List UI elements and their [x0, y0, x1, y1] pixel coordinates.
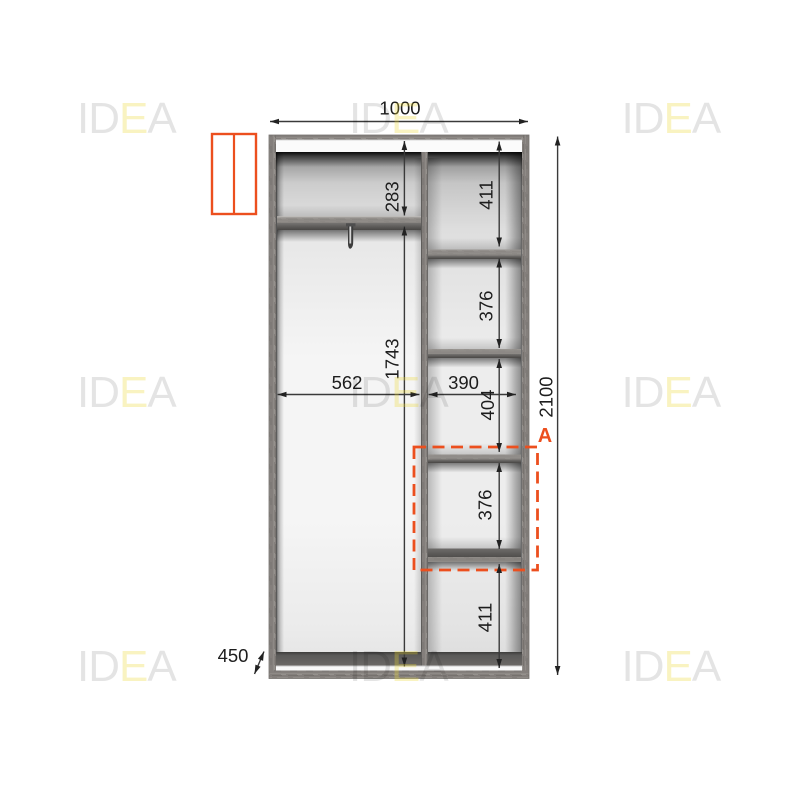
- svg-text:IDEA: IDEA: [349, 94, 449, 143]
- svg-text:411: 411: [475, 603, 496, 633]
- svg-text:IDEA: IDEA: [622, 368, 722, 417]
- svg-text:A: A: [538, 425, 552, 447]
- svg-text:IDEA: IDEA: [622, 94, 722, 143]
- svg-text:2100: 2100: [536, 376, 557, 417]
- svg-text:283: 283: [382, 181, 403, 212]
- svg-text:IDEA: IDEA: [622, 642, 722, 691]
- svg-text:450: 450: [218, 645, 249, 666]
- svg-text:IDEA: IDEA: [77, 368, 177, 417]
- svg-text:IDEA: IDEA: [349, 368, 449, 417]
- svg-text:376: 376: [475, 490, 496, 521]
- svg-text:IDEA: IDEA: [77, 94, 177, 143]
- svg-text:404: 404: [477, 390, 498, 421]
- svg-text:376: 376: [476, 291, 497, 322]
- svg-text:IDEA: IDEA: [349, 642, 449, 691]
- svg-text:390: 390: [448, 372, 479, 393]
- svg-text:411: 411: [476, 180, 497, 210]
- svg-text:IDEA: IDEA: [77, 642, 177, 691]
